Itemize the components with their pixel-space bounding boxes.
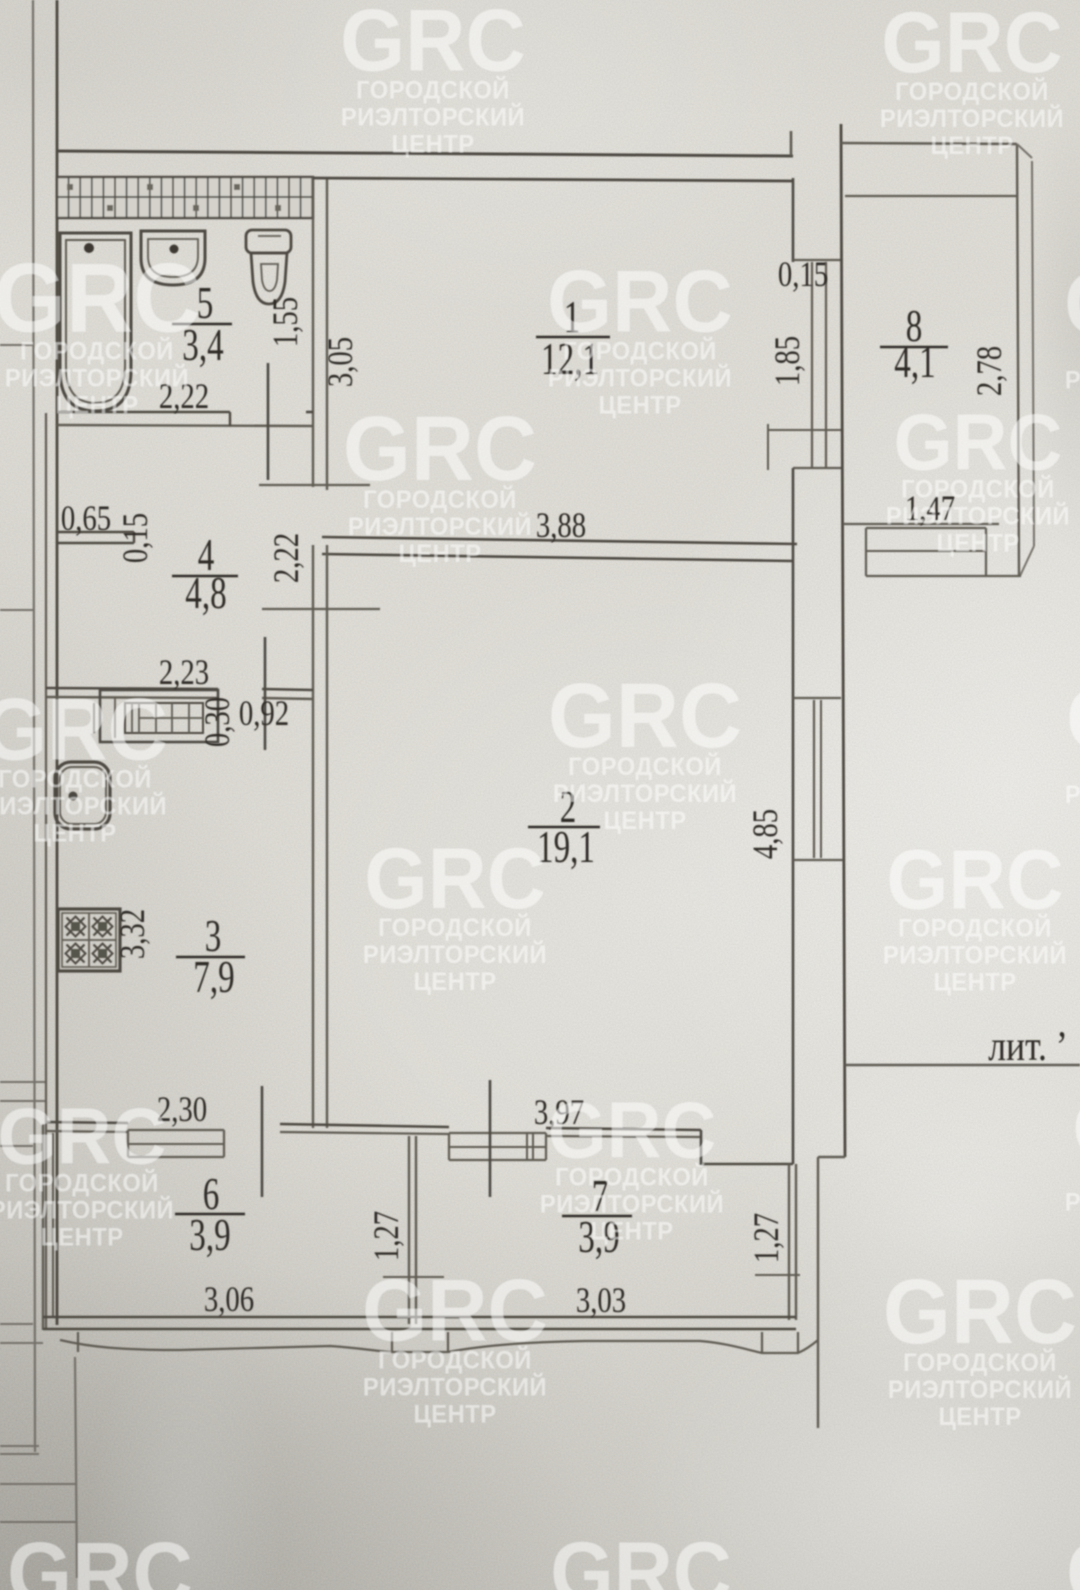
svg-text:3,03: 3,03 — [576, 1281, 626, 1321]
svg-text:РИЭЛТОРСКИЙ: РИЭЛТОРСКИЙ — [880, 104, 1064, 133]
svg-text:РИЭЛТОРСКИЙ: РИЭЛТОРСКИЙ — [0, 792, 167, 821]
svg-text:ГОРОДСКОЙ: ГОРОДСКОЙ — [555, 1163, 709, 1192]
svg-text:РИЭЛТОРСКИЙ: РИЭЛТОРСКИЙ — [883, 941, 1067, 970]
svg-text:7,9: 7,9 — [193, 951, 234, 1003]
svg-text:РИЭЛТОРСКИЙ: РИЭЛТОРСКИЙ — [1065, 366, 1080, 395]
svg-text:ГОРОДСКОЙ: ГОРОДСКОЙ — [20, 337, 174, 366]
svg-text:РИЭЛТОРСКИЙ: РИЭЛТОРСКИЙ — [1065, 1188, 1080, 1217]
svg-text:2,78: 2,78 — [970, 346, 1010, 396]
svg-text:3,88: 3,88 — [536, 506, 586, 546]
svg-text:GRC: GRC — [547, 252, 733, 350]
svg-text:ГОРОДСКОЙ: ГОРОДСКОЙ — [0, 765, 152, 794]
svg-text:3,06: 3,06 — [204, 1280, 254, 1320]
svg-text:ЦЕНТР: ЦЕНТР — [930, 132, 1013, 160]
svg-text:GRC: GRC — [548, 665, 742, 768]
svg-text:ГОРОДСКОЙ: ГОРОДСКОЙ — [563, 337, 717, 366]
svg-text:РИЭЛТОРСКИЙ: РИЭЛТОРСКИЙ — [888, 1376, 1072, 1405]
svg-text:GRC: GRC — [550, 1524, 732, 1590]
svg-text:ЦЕНТР: ЦЕНТР — [598, 392, 681, 420]
svg-text:GRC: GRC — [0, 243, 200, 353]
svg-text:GRC: GRC — [881, 0, 1063, 90]
svg-text:ЦЕНТР: ЦЕНТР — [590, 1218, 673, 1246]
svg-text:РИЭЛТОРСКИЙ: РИЭЛТОРСКИЙ — [0, 1196, 174, 1225]
svg-text:ГОРОДСКОЙ: ГОРОДСКОЙ — [898, 914, 1052, 943]
svg-text:1,27: 1,27 — [747, 1213, 787, 1263]
svg-text:GRC: GRC — [1066, 670, 1080, 766]
svg-text:ГОРОДСКОЙ: ГОРОДСКОЙ — [356, 76, 510, 105]
svg-text:РИЭЛТОРСКИЙ: РИЭЛТОРСКИЙ — [548, 364, 732, 393]
svg-text:ГОРОДСКОЙ: ГОРОДСКОЙ — [901, 475, 1055, 504]
svg-text:РИЭЛТОРСКИЙ: РИЭЛТОРСКИЙ — [363, 1373, 547, 1402]
svg-text:2,22: 2,22 — [267, 533, 307, 583]
svg-text:GRC: GRC — [886, 834, 1063, 927]
svg-text:0,30: 0,30 — [198, 697, 238, 747]
svg-text:0,15: 0,15 — [116, 513, 156, 563]
svg-text:GRC: GRC — [0, 680, 168, 778]
svg-text:GRC: GRC — [1064, 254, 1080, 352]
svg-text:4,8: 4,8 — [185, 567, 226, 619]
svg-text:0,65: 0,65 — [61, 499, 111, 539]
svg-text:РИЭЛТОРСКИЙ: РИЭЛТОРСКИЙ — [5, 364, 189, 393]
svg-text:ЦЕНТР: ЦЕНТР — [40, 1224, 123, 1252]
svg-text:ГОРОДСКОЙ: ГОРОДСКОЙ — [5, 1169, 159, 1198]
svg-text:ЦЕНТР: ЦЕНТР — [933, 969, 1016, 997]
svg-text:GRC: GRC — [883, 1261, 1077, 1364]
svg-text:ЦЕНТР: ЦЕНТР — [413, 968, 496, 996]
svg-text:ГОРОДСКОЙ: ГОРОДСКОЙ — [363, 486, 517, 515]
svg-text:РИЭЛТОРСКИЙ: РИЭЛТОРСКИЙ — [1065, 780, 1080, 809]
svg-text:GRC: GRC — [894, 397, 1063, 487]
svg-text:GRC: GRC — [548, 1085, 717, 1175]
svg-text:3,32: 3,32 — [113, 909, 153, 959]
svg-text:GRC: GRC — [1073, 1083, 1080, 1173]
svg-text:РИЭЛТОРСКИЙ: РИЭЛТОРСКИЙ — [363, 940, 547, 969]
svg-text:ГОРОДСКОЙ: ГОРОДСКОЙ — [378, 1346, 532, 1375]
svg-text:GRC: GRC — [362, 1261, 548, 1359]
svg-text:РИЭЛТОРСКИЙ: РИЭЛТОРСКИЙ — [348, 513, 532, 542]
svg-text:GRC: GRC — [364, 830, 546, 926]
svg-text:ЦЕНТР: ЦЕНТР — [391, 131, 474, 159]
svg-text:0,92: 0,92 — [239, 694, 289, 734]
svg-text:ЦЕНТР: ЦЕНТР — [936, 530, 1019, 558]
svg-text:ГОРОДСКОЙ: ГОРОДСКОЙ — [568, 753, 722, 782]
svg-text:лит. ʼ: лит. ʼ — [988, 1023, 1068, 1069]
svg-text:ЦЕНТР: ЦЕНТР — [55, 392, 138, 420]
svg-text:1,85: 1,85 — [768, 336, 808, 386]
svg-text:4,1: 4,1 — [894, 336, 935, 388]
svg-text:1,27: 1,27 — [367, 1211, 407, 1261]
svg-text:ЦЕНТР: ЦЕНТР — [33, 820, 116, 848]
svg-text:РИЭЛТОРСКИЙ: РИЭЛТОРСКИЙ — [886, 502, 1070, 531]
svg-text:ЦЕНТР: ЦЕНТР — [603, 808, 686, 836]
svg-text:РИЭЛТОРСКИЙ: РИЭЛТОРСКИЙ — [341, 103, 525, 132]
svg-text:GRC: GRC — [7, 1524, 193, 1590]
svg-text:1,55: 1,55 — [266, 297, 306, 347]
svg-text:0,15: 0,15 — [778, 255, 828, 295]
svg-text:ЦЕНТР: ЦЕНТР — [938, 1404, 1021, 1432]
svg-text:3,9: 3,9 — [189, 1209, 230, 1261]
svg-text:GRC: GRC — [0, 1091, 166, 1181]
svg-text:ГОРОДСКОЙ: ГОРОДСКОЙ — [895, 77, 1049, 106]
svg-text:GRC: GRC — [343, 398, 537, 501]
svg-text:ГОРОДСКОЙ: ГОРОДСКОЙ — [378, 913, 532, 942]
svg-text:РИЭЛТОРСКИЙ: РИЭЛТОРСКИЙ — [540, 1190, 724, 1219]
svg-text:GRC: GRC — [1066, 1524, 1080, 1590]
svg-text:ЦЕНТР: ЦЕНТР — [413, 1401, 496, 1429]
svg-text:ЦЕНТР: ЦЕНТР — [398, 541, 481, 569]
svg-text:РИЭЛТОРСКИЙ: РИЭЛТОРСКИЙ — [553, 780, 737, 809]
svg-text:ГОРОДСКОЙ: ГОРОДСКОЙ — [903, 1349, 1057, 1378]
svg-text:3,05: 3,05 — [321, 337, 361, 387]
svg-text:4,85: 4,85 — [746, 809, 786, 859]
